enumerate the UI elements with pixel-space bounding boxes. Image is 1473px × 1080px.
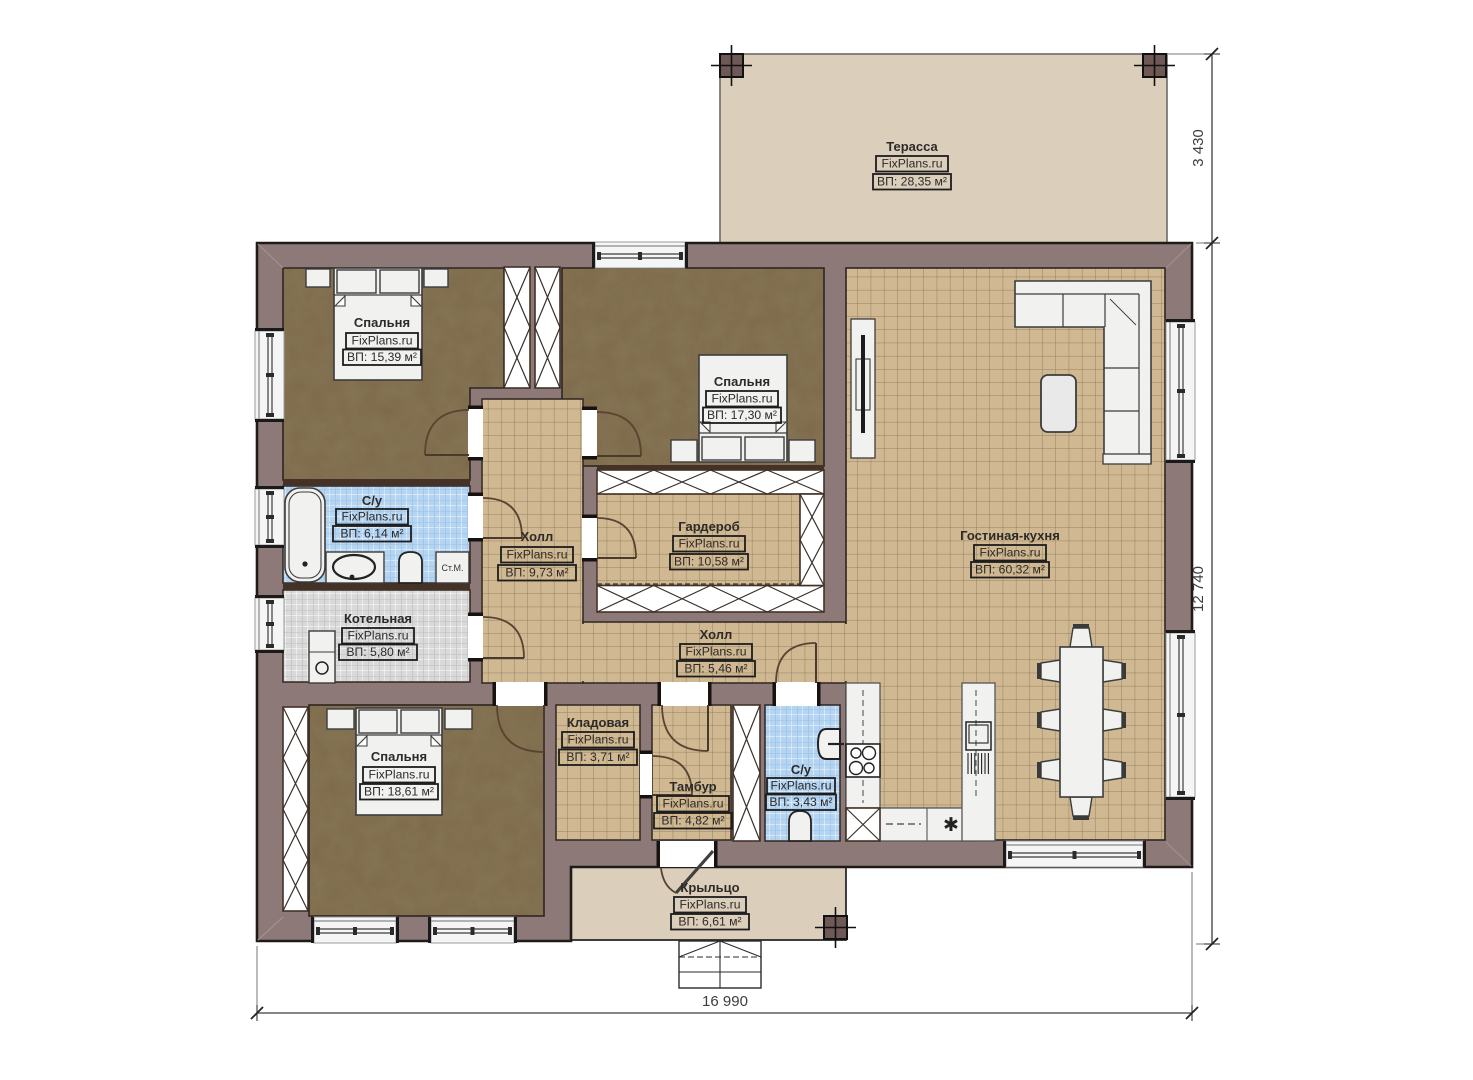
svg-text:ВП: 17,30 м²: ВП: 17,30 м²: [707, 408, 777, 422]
svg-text:С/у: С/у: [362, 493, 383, 508]
svg-text:FixPlans.ru: FixPlans.ru: [712, 392, 773, 406]
svg-text:ВП: 3,71 м²: ВП: 3,71 м²: [566, 750, 629, 764]
svg-text:12 740: 12 740: [1190, 566, 1207, 612]
svg-text:FixPlans.ru: FixPlans.ru: [568, 733, 629, 747]
svg-text:FixPlans.ru: FixPlans.ru: [507, 548, 568, 562]
svg-text:Терасса: Терасса: [886, 139, 938, 154]
svg-text:Крыльцо: Крыльцо: [680, 880, 739, 895]
svg-text:FixPlans.ru: FixPlans.ru: [369, 768, 430, 782]
svg-text:Тамбур: Тамбур: [669, 779, 716, 794]
svg-text:Кладовая: Кладовая: [567, 715, 629, 730]
svg-text:Спальня: Спальня: [714, 374, 770, 389]
svg-text:ВП: 9,73 м²: ВП: 9,73 м²: [505, 566, 568, 580]
svg-text:FixPlans.ru: FixPlans.ru: [679, 537, 740, 551]
svg-text:Холл: Холл: [700, 627, 733, 642]
svg-text:16 990: 16 990: [702, 993, 748, 1010]
svg-text:Спальня: Спальня: [354, 315, 410, 330]
svg-text:FixPlans.ru: FixPlans.ru: [348, 629, 409, 643]
svg-text:ВП: 5,46 м²: ВП: 5,46 м²: [684, 662, 747, 676]
svg-text:FixPlans.ru: FixPlans.ru: [352, 334, 413, 348]
svg-text:ВП: 3,43 м²: ВП: 3,43 м²: [769, 795, 832, 809]
svg-text:FixPlans.ru: FixPlans.ru: [686, 645, 747, 659]
svg-text:FixPlans.ru: FixPlans.ru: [342, 510, 403, 524]
svg-text:FixPlans.ru: FixPlans.ru: [663, 797, 724, 811]
svg-text:ВП: 15,39 м²: ВП: 15,39 м²: [347, 350, 417, 364]
svg-text:ВП: 6,61 м²: ВП: 6,61 м²: [678, 915, 741, 929]
svg-text:Котельная: Котельная: [344, 611, 412, 626]
svg-text:FixPlans.ru: FixPlans.ru: [771, 779, 832, 793]
svg-text:Ст.М.: Ст.М.: [441, 563, 463, 573]
svg-text:ВП: 4,82 м²: ВП: 4,82 м²: [661, 814, 724, 828]
svg-text:3 430: 3 430: [1190, 129, 1207, 167]
svg-text:ВП: 5,80 м²: ВП: 5,80 м²: [346, 645, 409, 659]
svg-text:С/у: С/у: [791, 762, 812, 777]
svg-text:FixPlans.ru: FixPlans.ru: [980, 546, 1041, 560]
svg-text:Спальня: Спальня: [371, 749, 427, 764]
svg-text:✱: ✱: [943, 815, 959, 836]
svg-text:Холл: Холл: [521, 529, 554, 544]
svg-text:ВП: 18,61 м²: ВП: 18,61 м²: [364, 785, 434, 799]
svg-text:FixPlans.ru: FixPlans.ru: [680, 898, 741, 912]
svg-text:ВП: 6,14 м²: ВП: 6,14 м²: [340, 527, 403, 541]
svg-text:Гардероб: Гардероб: [678, 519, 739, 534]
svg-text:ВП: 28,35 м²: ВП: 28,35 м²: [877, 175, 947, 189]
svg-text:Гостиная-кухня: Гостиная-кухня: [960, 528, 1060, 543]
svg-text:FixPlans.ru: FixPlans.ru: [882, 157, 943, 171]
svg-text:ВП: 60,32 м²: ВП: 60,32 м²: [975, 563, 1045, 577]
svg-text:ВП: 10,58 м²: ВП: 10,58 м²: [674, 555, 744, 569]
